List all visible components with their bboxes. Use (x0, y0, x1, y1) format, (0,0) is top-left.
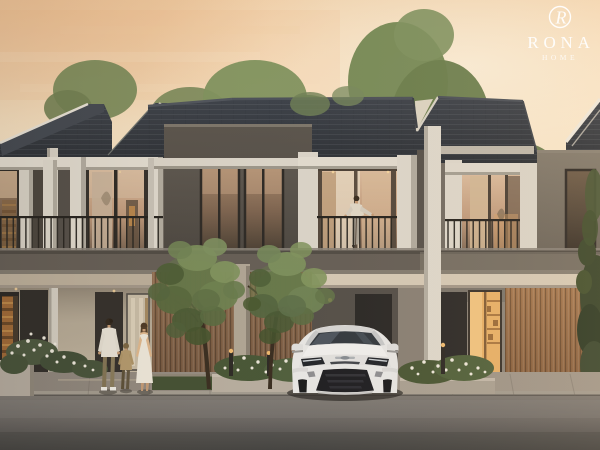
svg-text:R: R (555, 8, 567, 28)
svg-text:HOME: HOME (542, 53, 578, 62)
svg-text:RONA: RONA (527, 33, 594, 52)
